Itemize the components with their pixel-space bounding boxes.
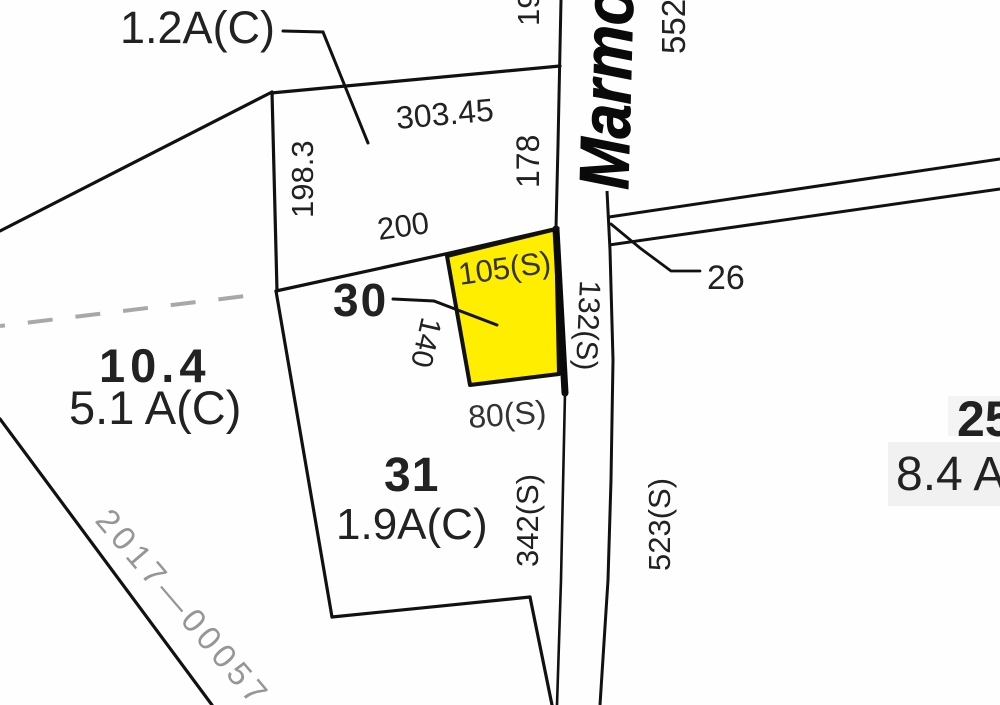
svg-text:342(S): 342(S): [510, 474, 545, 567]
svg-text:190: 190: [511, 0, 546, 26]
svg-text:30: 30: [333, 274, 388, 326]
svg-text:178: 178: [510, 135, 546, 188]
svg-text:31: 31: [384, 449, 439, 502]
svg-text:80(S): 80(S): [467, 394, 548, 435]
svg-text:26: 26: [707, 259, 745, 297]
svg-text:523(S): 523(S): [642, 478, 677, 571]
svg-text:25: 25: [957, 391, 1000, 447]
svg-text:132(S): 132(S): [569, 280, 606, 371]
svg-text:200: 200: [375, 205, 431, 247]
svg-text:5.1 A(C): 5.1 A(C): [69, 381, 241, 434]
svg-text:8.4 A(C): 8.4 A(C): [896, 448, 1000, 501]
svg-text:1.2A(C): 1.2A(C): [120, 2, 275, 53]
svg-text:552(S): 552(S): [655, 0, 692, 54]
svg-text:Marmon: Marmon: [564, 0, 649, 190]
svg-text:198.3: 198.3: [285, 140, 320, 218]
svg-text:1.9A(C): 1.9A(C): [336, 500, 488, 549]
